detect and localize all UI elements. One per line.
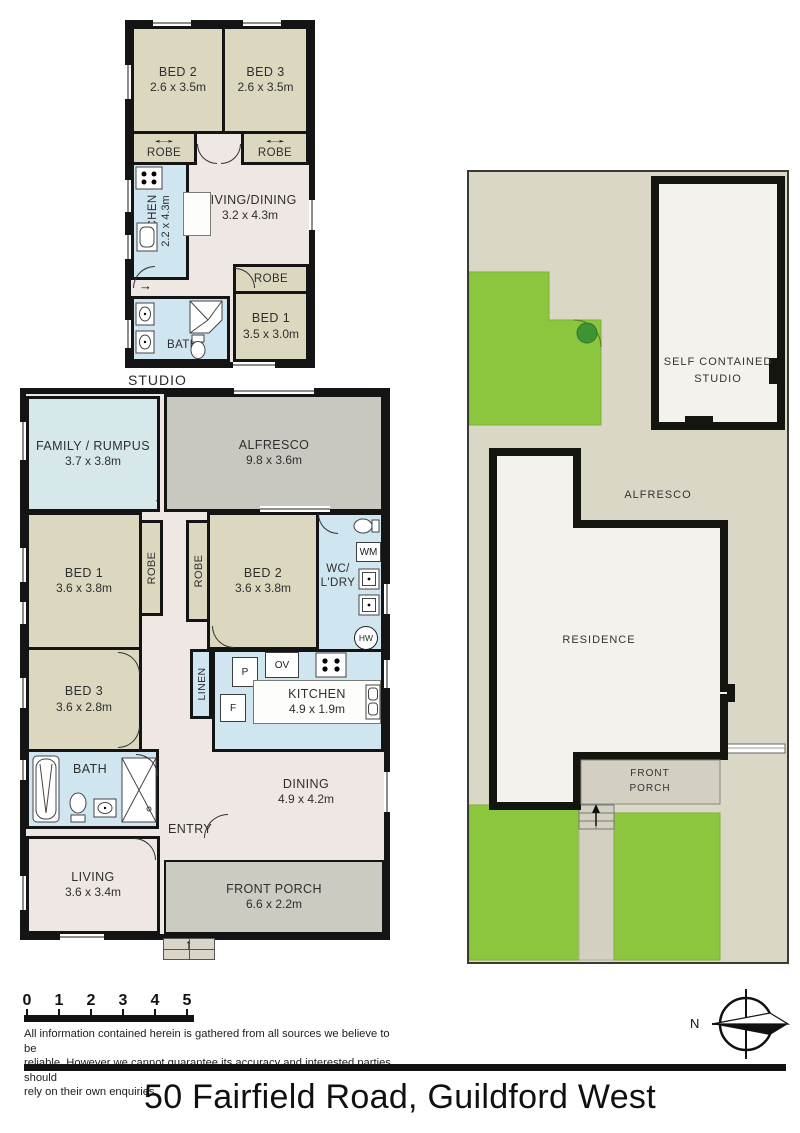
window <box>384 772 390 812</box>
scale-bar: 0 1 2 3 4 5 <box>24 992 200 1022</box>
window <box>309 200 315 230</box>
room-label: DINING <box>283 777 329 793</box>
room-label: LIVING/DINING <box>203 193 296 209</box>
studio-bed1-room: BED 1 3.5 x 3.0m <box>233 291 309 362</box>
site-plan: SELF CONTAINED STUDIO ALFRESCO RESIDENCE… <box>467 170 789 964</box>
room-label: BED 3 <box>246 65 284 81</box>
alfresco-room: ALFRESCO 9.8 x 3.6m <box>164 394 384 512</box>
site-alfresco-label: ALFRESCO <box>593 487 723 504</box>
window <box>243 20 281 26</box>
window <box>233 362 275 368</box>
room-label: BED 3 <box>65 684 103 700</box>
site-residence-label: RESIDENCE <box>534 632 664 649</box>
scale-number: 0 <box>22 992 31 1010</box>
sink-icon <box>136 222 158 252</box>
door-arc <box>204 814 228 838</box>
toilet-icon <box>67 790 89 824</box>
door-arrow-icon: ↓ <box>154 490 162 505</box>
door-arc <box>221 144 241 164</box>
room-dims: 6.6 x 2.2m <box>246 897 302 912</box>
window <box>153 20 191 26</box>
room-label: LINEN <box>196 668 208 701</box>
page-title: 50 Fairfield Road, Guildford West <box>0 1078 800 1117</box>
room-dims: 3.2 x 4.3m <box>222 208 278 223</box>
room-label: ROBE <box>147 146 181 160</box>
room-label: ROBE <box>146 552 158 585</box>
site-studio-building <box>655 180 781 426</box>
studio-robe-left: ↔ ROBE <box>131 131 197 165</box>
tree-icon <box>577 323 597 343</box>
residence-interior: FAMILY / RUMPUS 3.7 x 3.8m ALFRESCO 9.8 … <box>26 394 384 934</box>
window <box>384 584 390 614</box>
front-porch: FRONT PORCH 6.6 x 2.2m <box>164 860 384 934</box>
bed1-room: BED 1 3.6 x 3.8m <box>26 512 142 650</box>
window <box>384 660 390 688</box>
bathtub-icon <box>32 755 60 823</box>
scale-number: 4 <box>150 992 159 1010</box>
window <box>125 180 131 212</box>
room-label: BED 1 <box>65 566 103 582</box>
right-lawn <box>614 813 720 960</box>
sink-icon <box>365 684 381 720</box>
porch-steps: ↑ <box>163 938 215 960</box>
window <box>20 422 26 460</box>
left-lawn <box>469 805 579 960</box>
scale-bar-line <box>24 1015 194 1022</box>
up-arrow-icon: ↑ <box>185 937 192 951</box>
studio-interior: BED 2 2.6 x 3.5m BED 3 2.6 x 3.5m ↔ ROBE… <box>131 26 309 362</box>
toilet-icon <box>187 334 209 360</box>
linen-vertical-label: LINEN <box>192 654 210 714</box>
oven-box: OV <box>265 652 299 678</box>
scale-number: 2 <box>86 992 95 1010</box>
linen-cupboard: LINEN <box>190 649 212 719</box>
room-dims: 3.5 x 3.0m <box>243 327 299 342</box>
stove-icon <box>315 652 347 678</box>
window <box>125 65 131 99</box>
studio-plan: BED 2 2.6 x 3.5m BED 3 2.6 x 3.5m ↔ ROBE… <box>125 20 315 368</box>
studio-robe-right: ↔ ROBE <box>241 131 309 165</box>
window <box>20 876 26 910</box>
room-dims: 9.8 x 3.6m <box>246 453 302 468</box>
room-dims: 4.9 x 4.2m <box>278 792 334 807</box>
toilet-icon <box>352 516 380 536</box>
room-label: ALFRESCO <box>239 438 310 454</box>
room-dims: 2.6 x 3.5m <box>237 80 293 95</box>
shower-icon <box>189 300 223 334</box>
site-plan-graphics <box>469 172 787 962</box>
window <box>234 388 314 394</box>
site-residence-building <box>493 452 731 806</box>
window <box>20 548 26 582</box>
window <box>125 320 131 348</box>
kitchen-room: P F OV KITCHEN 4.9 x 1.9m <box>212 649 384 752</box>
room-label: FAMILY / RUMPUS <box>36 439 150 455</box>
room-dims: 3.6 x 3.8m <box>235 581 291 596</box>
door-arc <box>197 144 217 164</box>
stove-icon <box>135 166 163 190</box>
studio-caption: STUDIO <box>128 372 187 388</box>
room-label: LIVING <box>71 870 114 886</box>
fridge-box: F <box>220 694 246 722</box>
room-label: BED 2 <box>159 65 197 81</box>
window <box>20 602 26 624</box>
wc-laundry-label: WC/ L'DRY <box>318 562 358 591</box>
laundry-tub-icon <box>358 594 380 616</box>
floorplan-page: BED 2 2.6 x 3.5m BED 3 2.6 x 3.5m ↔ ROBE… <box>0 0 800 1133</box>
window <box>125 235 131 259</box>
studio-bed2-room: BED 2 2.6 x 3.5m <box>131 26 225 134</box>
bath-label: BATH <box>73 762 107 778</box>
window <box>20 760 26 780</box>
room-dims: 4.9 x 1.9m <box>289 702 345 717</box>
room-label: ROBE <box>258 146 292 160</box>
studio-wall-step <box>685 416 713 426</box>
room-dims: 3.7 x 3.8m <box>65 454 121 469</box>
scale-number: 5 <box>182 992 191 1010</box>
laundry-tub-icon <box>358 568 380 590</box>
room-dims: 3.6 x 3.8m <box>56 581 112 596</box>
compass-needle-top <box>712 1013 788 1024</box>
residence-plan: FAMILY / RUMPUS 3.7 x 3.8m ALFRESCO 9.8 … <box>20 388 390 940</box>
site-studio-label: SELF CONTAINED STUDIO <box>655 354 781 387</box>
rear-lawn <box>469 272 601 425</box>
vanity-icon <box>135 330 155 354</box>
vanity-icon <box>93 798 117 818</box>
family-room: FAMILY / RUMPUS 3.7 x 3.8m <box>26 396 160 512</box>
scale-number: 3 <box>118 992 127 1010</box>
room-label: BED 1 <box>252 311 290 327</box>
room-dims: 3.6 x 3.4m <box>65 885 121 900</box>
leftright-arrow-icon: ↔ <box>260 136 290 146</box>
studio-bed3-room: BED 3 2.6 x 3.5m <box>222 26 309 134</box>
kitchen-bench <box>183 192 211 236</box>
scale-number: 1 <box>54 992 63 1010</box>
room-label: KITCHEN <box>288 687 346 703</box>
compass-north-label: N <box>690 1016 699 1031</box>
room-dims: 3.6 x 2.8m <box>56 700 112 715</box>
dining-label: DINING 4.9 x 4.2m <box>231 772 381 812</box>
vanity-icon <box>135 302 155 326</box>
window <box>260 506 330 512</box>
window <box>60 934 104 940</box>
window <box>20 678 26 708</box>
robe-vertical-label: ROBE <box>142 538 160 598</box>
room-label: FRONT PORCH <box>226 882 322 898</box>
compass-rose <box>698 986 790 1064</box>
room-label: ROBE <box>193 555 205 588</box>
room-label: BED 2 <box>244 566 282 582</box>
room-label: ROBE <box>254 272 288 286</box>
site-porch-label: FRONT PORCH <box>600 766 700 796</box>
kitchen-counter: KITCHEN 4.9 x 1.9m <box>253 680 381 724</box>
washing-machine-box: WM <box>356 542 381 562</box>
room-dims: 2.6 x 3.5m <box>150 80 206 95</box>
footer-divider <box>24 1064 786 1071</box>
robe-vertical-label: ROBE <box>189 541 207 601</box>
hot-water-unit: HW <box>354 626 378 650</box>
leftright-arrow-icon: ↔ <box>149 136 179 146</box>
bed1-robe: ROBE <box>139 520 163 616</box>
